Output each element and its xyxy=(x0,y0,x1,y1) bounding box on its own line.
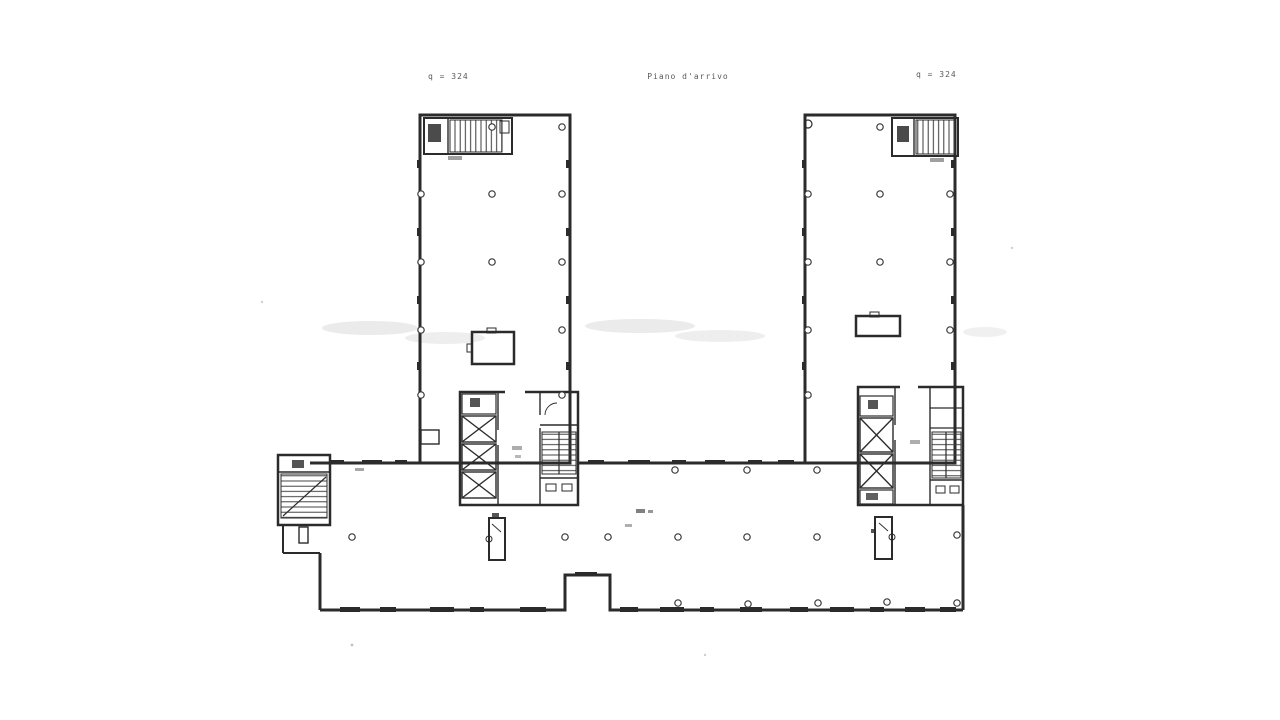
left-tower-stair-icon xyxy=(424,118,512,160)
annex-stair-icon xyxy=(281,474,327,518)
right-service-core xyxy=(858,384,963,505)
escalator-icon xyxy=(486,513,505,560)
escalator-icon xyxy=(871,517,895,559)
scanned-floor-plan-sheet: q = 324 Piano d'arrivo q = 324 xyxy=(0,0,1280,720)
wc-fixture-icon xyxy=(546,484,556,491)
right-elevation-label: q = 324 xyxy=(916,70,957,79)
right-tower xyxy=(802,115,958,463)
podium xyxy=(283,460,963,612)
left-wall-shaft xyxy=(421,430,439,444)
left-elevation-label: q = 324 xyxy=(428,72,469,81)
core-stair-icon xyxy=(932,432,961,478)
elevator-shaft-icon xyxy=(860,418,893,488)
left-service-core xyxy=(460,389,578,505)
right-roof-opening-icon xyxy=(856,312,900,336)
wc-fixture-icon xyxy=(562,484,572,491)
left-roof-opening-icon xyxy=(467,328,514,364)
wc-fixture-icon xyxy=(936,486,945,493)
elevator-shaft-icon xyxy=(462,416,496,498)
right-tower-stair-icon xyxy=(892,118,958,162)
podium-south-wall xyxy=(320,575,963,610)
core-stair-icon xyxy=(542,432,576,474)
plan-title: Piano d'arrivo xyxy=(647,72,728,81)
floor-plan-drawing: q = 324 Piano d'arrivo q = 324 xyxy=(0,0,1280,720)
door-swing-icon xyxy=(545,403,557,415)
scan-artifacts xyxy=(261,247,1013,656)
window-band-ticks xyxy=(330,460,956,612)
sheet-annotations: q = 324 Piano d'arrivo q = 324 xyxy=(428,70,957,81)
column-grid xyxy=(349,124,960,607)
left-tower xyxy=(417,115,570,463)
wc-fixture-icon xyxy=(950,486,959,493)
west-stair-annex xyxy=(278,455,330,525)
